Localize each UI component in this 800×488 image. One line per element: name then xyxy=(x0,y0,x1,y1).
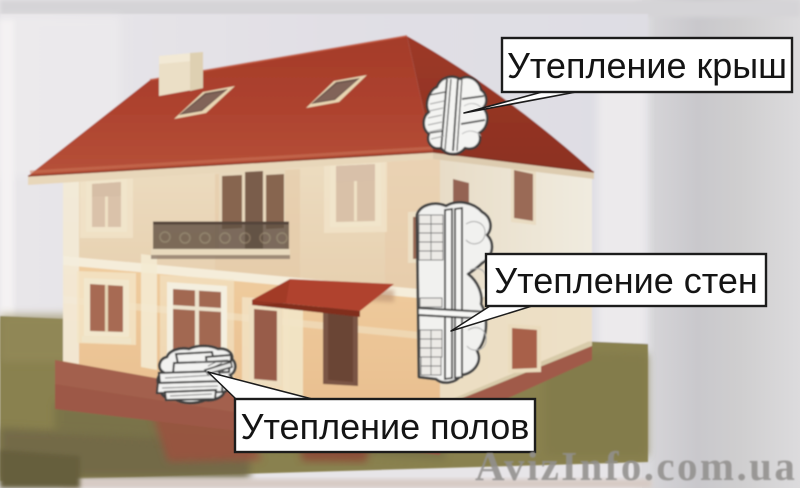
svg-text:Утепление стен: Утепление стен xyxy=(494,260,758,301)
svg-text:Утепление полов: Утепление полов xyxy=(241,406,530,447)
svg-text:Утепление крыш: Утепление крыш xyxy=(507,45,787,86)
svg-text:AvizInfo.com.ua: AvizInfo.com.ua xyxy=(475,443,797,488)
